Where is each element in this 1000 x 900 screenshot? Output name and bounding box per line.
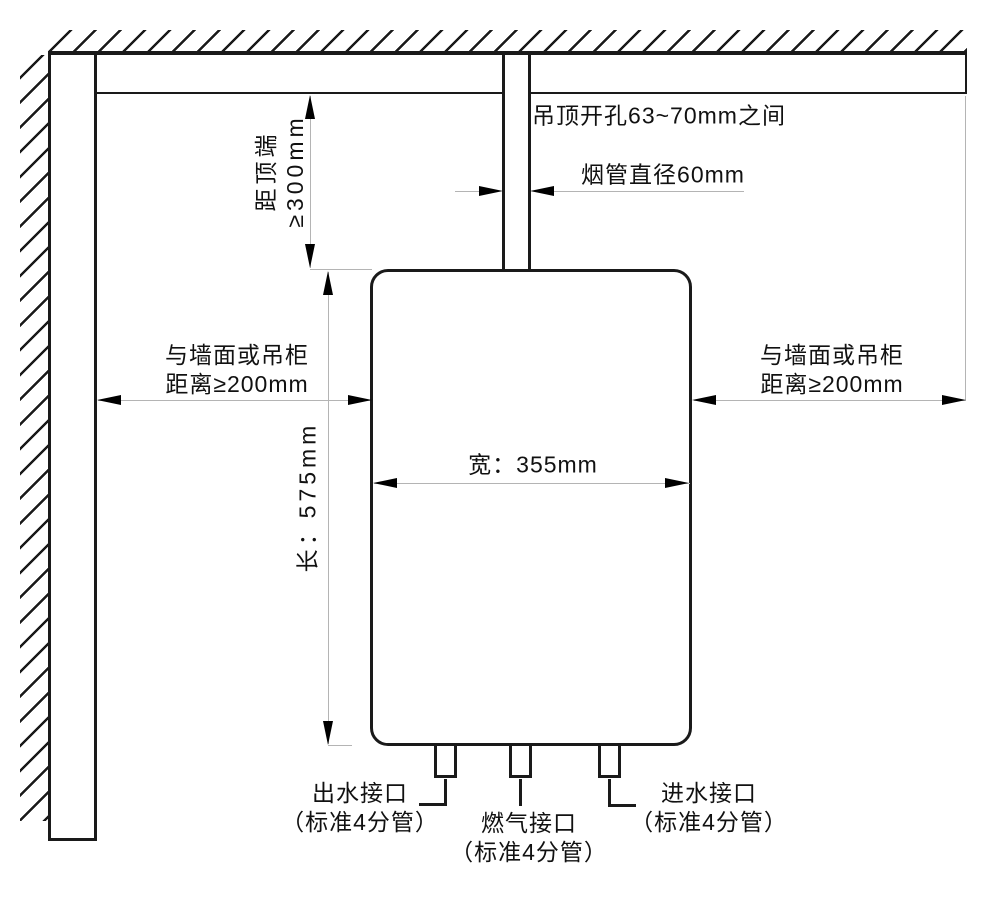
left-clearance-arrow-right: [348, 395, 372, 405]
top-clearance-label-line1: 距顶端: [252, 114, 281, 227]
length-arrow-down: [323, 721, 333, 745]
left-clearance-arrow-left: [97, 395, 121, 405]
length-arrow-up: [323, 271, 333, 295]
top-clearance-label: 距顶端 ≥300mm: [252, 114, 310, 227]
suspended-ceiling-panel: [97, 55, 967, 94]
water-heater-body: [370, 269, 692, 746]
flue-dim-arrow-right: [479, 186, 503, 196]
right-clearance-arrow-right: [942, 395, 966, 405]
ceiling-opening-label: 吊顶开孔63~70mm之间: [532, 102, 786, 131]
width-arrow-right: [665, 478, 689, 488]
left-clearance-label-line1: 与墙面或吊柜: [165, 341, 309, 370]
inlet-label-line1: 进水接口: [630, 779, 788, 808]
outlet-connection-stub: [434, 744, 457, 778]
length-extension-line: [328, 745, 352, 746]
length-label: 长：575mm: [294, 422, 323, 573]
wall-hatch-pattern: [20, 55, 48, 821]
flue-dim-leader-left: [455, 191, 481, 192]
inlet-label-line2: （标准4分管）: [630, 808, 788, 837]
outlet-label-line2: （标准4分管）: [281, 808, 439, 837]
right-clearance-dim-line: [694, 400, 966, 401]
left-clearance-label: 与墙面或吊柜 距离≥200mm: [165, 341, 309, 399]
flue-diameter-label: 烟管直径60mm: [581, 161, 745, 190]
left-clearance-label-line2: 距离≥200mm: [165, 370, 309, 399]
right-clearance-label: 与墙面或吊柜 距离≥200mm: [760, 341, 904, 399]
top-clearance-arrow-down: [305, 244, 315, 268]
gas-label: 燃气接口 （标准4分管）: [450, 809, 608, 867]
outlet-label-line1: 出水接口: [281, 779, 439, 808]
gas-leader-vertical: [519, 779, 522, 806]
width-dim-line: [374, 483, 690, 484]
inlet-connection-stub: [598, 744, 621, 778]
top-clearance-label-line2: ≥300mm: [281, 114, 310, 227]
outlet-label: 出水接口 （标准4分管）: [281, 779, 439, 837]
right-clearance-arrow-left: [692, 395, 716, 405]
right-clearance-label-line2: 距离≥200mm: [760, 370, 904, 399]
top-clearance-extension-line: [310, 269, 372, 270]
top-clearance-dim-line: [310, 96, 311, 268]
width-arrow-left: [373, 478, 397, 488]
gas-connection-stub: [509, 744, 532, 778]
length-dim-line: [328, 272, 329, 744]
width-label: 宽：355mm: [468, 451, 598, 480]
inlet-leader-vertical: [608, 779, 611, 807]
ceiling-hatch-pattern: [48, 30, 967, 52]
gas-label-line2: （标准4分管）: [450, 838, 608, 867]
installation-diagram: 距顶端 ≥300mm 吊顶开孔63~70mm之间 烟管直径60mm 与墙面或吊柜…: [0, 0, 1000, 900]
left-clearance-dim-line: [98, 400, 372, 401]
flue-dim-arrow-left: [530, 186, 554, 196]
gas-label-line1: 燃气接口: [450, 809, 608, 838]
left-wall: [48, 55, 97, 841]
inlet-label: 进水接口 （标准4分管）: [630, 779, 788, 837]
outlet-leader-vertical: [444, 779, 447, 806]
right-clearance-extension-line: [965, 96, 966, 400]
right-clearance-label-line1: 与墙面或吊柜: [760, 341, 904, 370]
flue-pipe: [502, 55, 531, 272]
flue-dim-leader-right: [554, 191, 744, 192]
